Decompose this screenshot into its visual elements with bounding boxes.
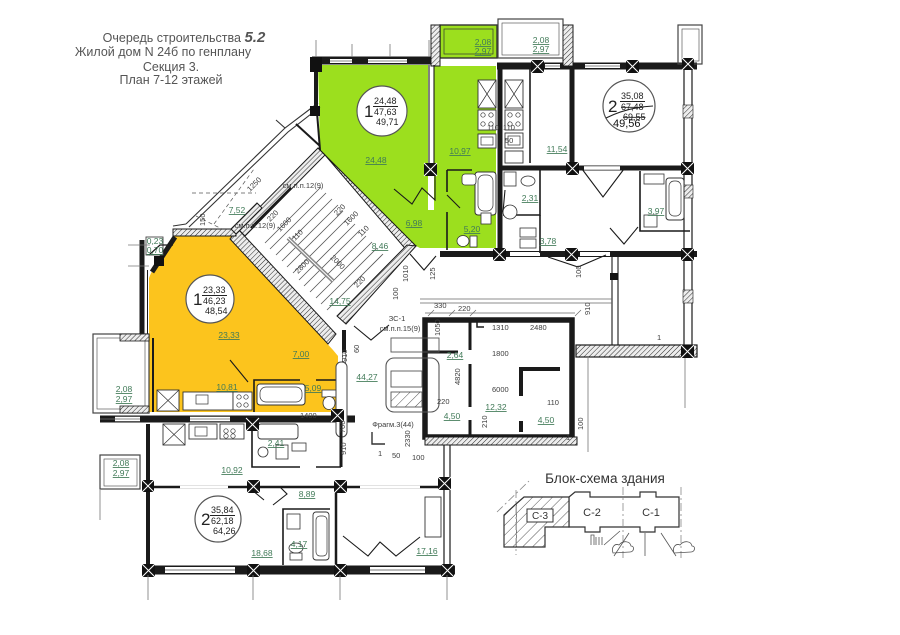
svg-text:7,00: 7,00	[293, 349, 310, 359]
svg-text:см.п.п.12(9): см.п.п.12(9)	[283, 181, 324, 190]
svg-text:10,92: 10,92	[221, 465, 243, 475]
svg-text:47,63: 47,63	[374, 107, 397, 117]
svg-text:330: 330	[434, 301, 447, 310]
svg-text:23,33: 23,33	[203, 285, 226, 295]
svg-text:План 7-12 этажей: План 7-12 этажей	[119, 73, 222, 87]
svg-text:910: 910	[583, 302, 592, 315]
svg-text:35,84: 35,84	[211, 505, 234, 515]
svg-text:1010: 1010	[401, 265, 410, 282]
svg-text:125: 125	[428, 267, 437, 280]
svg-text:1800: 1800	[492, 349, 509, 358]
svg-text:2,97: 2,97	[116, 394, 133, 404]
svg-text:150: 150	[198, 213, 207, 226]
svg-text:1310: 1310	[492, 323, 509, 332]
svg-text:110: 110	[547, 398, 559, 407]
svg-text:17,16: 17,16	[416, 546, 438, 556]
svg-text:23,33: 23,33	[218, 330, 240, 340]
svg-text:11,54: 11,54	[547, 144, 568, 154]
svg-text:35,08: 35,08	[621, 91, 644, 101]
svg-text:Блок-схема здания: Блок-схема здания	[545, 471, 665, 486]
svg-text:2480: 2480	[530, 323, 547, 332]
svg-text:100: 100	[391, 287, 400, 300]
svg-text:24,48: 24,48	[374, 96, 397, 106]
svg-text:8,89: 8,89	[299, 489, 316, 499]
svg-text:1: 1	[566, 433, 570, 442]
svg-text:48,54: 48,54	[205, 306, 228, 316]
svg-text:4,17: 4,17	[291, 539, 308, 549]
svg-text:4820: 4820	[453, 368, 462, 385]
svg-text:6000: 6000	[492, 385, 509, 394]
svg-text:100: 100	[574, 265, 583, 278]
svg-text:110: 110	[487, 123, 499, 132]
svg-text:49,71: 49,71	[376, 117, 399, 127]
svg-text:5,09: 5,09	[305, 383, 322, 393]
svg-text:18,68: 18,68	[251, 548, 273, 558]
svg-text:10,81: 10,81	[216, 382, 238, 392]
svg-text:Жилой дом N 24б по генплану: Жилой дом N 24б по генплану	[75, 45, 252, 59]
svg-text:910: 910	[339, 442, 348, 455]
svg-text:700: 700	[338, 420, 347, 433]
svg-text:1: 1	[193, 290, 202, 309]
svg-text:2,08: 2,08	[116, 384, 133, 394]
svg-text:110: 110	[503, 123, 515, 132]
svg-text:С-1: С-1	[642, 507, 660, 519]
svg-text:50: 50	[505, 136, 513, 145]
svg-text:220: 220	[458, 304, 471, 313]
svg-text:24,48: 24,48	[365, 155, 387, 165]
svg-text:4,50: 4,50	[538, 415, 555, 425]
svg-text:2330: 2330	[403, 430, 412, 447]
svg-text:220: 220	[437, 397, 450, 406]
svg-text:Фрагм.3(44): Фрагм.3(44)	[372, 420, 414, 429]
svg-text:2: 2	[201, 510, 210, 529]
svg-text:1400: 1400	[300, 411, 317, 420]
svg-text:910: 910	[340, 349, 349, 362]
svg-text:50: 50	[392, 451, 400, 460]
svg-text:Очередь строительства 5.2: Очередь строительства 5.2	[103, 29, 266, 46]
svg-text:3,78: 3,78	[540, 236, 557, 246]
svg-text:2,41: 2,41	[268, 438, 285, 448]
svg-text:49,56: 49,56	[613, 118, 641, 130]
svg-text:100: 100	[412, 453, 425, 462]
svg-text:4,50: 4,50	[444, 411, 461, 421]
svg-text:2,08: 2,08	[113, 458, 130, 468]
svg-text:С-2: С-2	[583, 507, 601, 519]
svg-text:210: 210	[480, 415, 489, 428]
svg-text:3,97: 3,97	[648, 206, 665, 216]
svg-text:6,98: 6,98	[406, 218, 423, 228]
svg-text:см.п.п.15(9): см.п.п.15(9)	[380, 324, 421, 333]
svg-text:Секция 3.: Секция 3.	[143, 60, 199, 74]
svg-text:2,97: 2,97	[475, 46, 492, 56]
svg-text:2,97: 2,97	[533, 44, 550, 54]
svg-text:1050: 1050	[433, 319, 442, 336]
svg-text:1: 1	[364, 102, 373, 121]
svg-text:2,97: 2,97	[113, 468, 130, 478]
svg-text:14,75: 14,75	[329, 296, 351, 306]
svg-text:7,52: 7,52	[229, 205, 246, 215]
svg-text:60: 60	[352, 345, 361, 353]
svg-text:44,27: 44,27	[356, 372, 378, 382]
svg-text:46,23: 46,23	[203, 296, 226, 306]
svg-text:64,26: 64,26	[213, 526, 236, 536]
svg-text:2,31: 2,31	[522, 193, 539, 203]
svg-text:100: 100	[576, 417, 585, 430]
svg-text:С-3: С-3	[532, 511, 549, 522]
svg-text:1: 1	[378, 449, 382, 458]
svg-text:62,18: 62,18	[211, 516, 234, 526]
svg-text:10,97: 10,97	[449, 146, 471, 156]
svg-text:1: 1	[657, 333, 661, 342]
svg-text:8,46: 8,46	[372, 241, 389, 251]
svg-text:ЗС-1: ЗС-1	[389, 314, 406, 323]
svg-text:12,32: 12,32	[485, 402, 507, 412]
svg-text:2,64: 2,64	[447, 350, 464, 360]
svg-text:0,70: 0,70	[147, 245, 164, 255]
svg-text:5,20: 5,20	[464, 224, 481, 234]
